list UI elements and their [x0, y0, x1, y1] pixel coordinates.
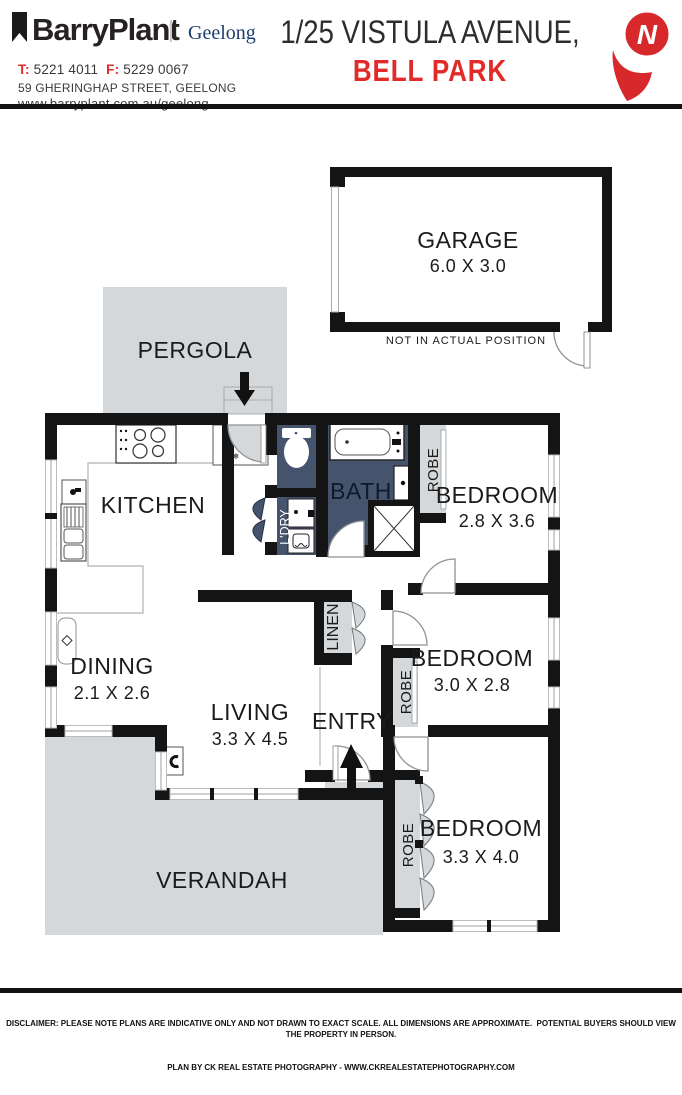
- linen-bifold-door: [352, 602, 365, 654]
- bath-label: BATH: [330, 478, 392, 504]
- bedroom2-label: BEDROOM: [411, 645, 533, 671]
- kitchen-label: KITCHEN: [101, 492, 205, 518]
- office-address: 59 GHERINGHAP STREET, GEELONG: [18, 81, 236, 95]
- robe3-label: ROBE: [400, 823, 417, 868]
- living-dims: 3.3 X 4.5: [212, 729, 289, 749]
- garage-roller-door: [332, 187, 339, 312]
- garage-note: NOT IN ACTUAL POSITION: [386, 335, 546, 347]
- bedroom1-door-arc: [421, 559, 455, 593]
- brand-divider: [170, 20, 172, 42]
- verandah-area: [45, 737, 383, 935]
- bedroom1-dims: 2.8 X 3.6: [459, 511, 536, 531]
- property-title: 1/25 VISTULA AVENUE, BELL PARK: [230, 14, 630, 89]
- garage: GARAGE 6.0 X 3.0 NOT IN ACTUAL POSITION: [330, 167, 612, 368]
- garage-label: GARAGE: [417, 227, 518, 253]
- garage-door-arc: [554, 332, 588, 366]
- north-icon: N: [606, 6, 678, 104]
- laundry-label: L'DRY: [278, 509, 292, 545]
- phone-t-label: T:: [18, 62, 30, 77]
- laundry-bifold-door: [253, 498, 265, 542]
- phone-line: T: 5221 4011 F: 5229 0067: [18, 62, 189, 77]
- disclaimer-text: DISCLAIMER: PLEASE NOTE PLANS ARE INDICA…: [0, 1018, 682, 1040]
- living-label: LIVING: [211, 699, 289, 725]
- bedroom3-door-arc: [394, 737, 428, 771]
- bedroom3-dims: 3.3 X 4.0: [443, 847, 520, 867]
- footer-divider-bar: [0, 988, 682, 993]
- verandah-label: VERANDAH: [156, 867, 288, 893]
- bedroom1-label: BEDROOM: [436, 482, 558, 508]
- bathtub-icon: [330, 424, 404, 460]
- credit-text: PLAN BY CK REAL ESTATE PHOTOGRAPHY - WWW…: [0, 1062, 682, 1073]
- robe2-label: ROBE: [398, 670, 415, 715]
- garage-door-leaf: [584, 332, 590, 368]
- garage-dims: 6.0 X 3.0: [430, 256, 507, 276]
- property-address-line1: 1/25 VISTULA AVENUE,: [258, 14, 602, 51]
- property-suburb: BELL PARK: [262, 53, 598, 89]
- cooktop-icon: [116, 425, 176, 463]
- pergola-door-leaf: [261, 425, 266, 463]
- bedroom2-dims: 3.0 X 2.8: [434, 675, 511, 695]
- fireplace-icon: [166, 747, 183, 775]
- phone-f-value: 5229 0067: [119, 62, 189, 77]
- bedroom3-label: BEDROOM: [420, 815, 542, 841]
- tap-icon: [62, 480, 86, 504]
- linen-label: LINEN: [325, 603, 342, 650]
- entry-door-leaf: [333, 746, 338, 780]
- dining-dims: 2.1 X 2.6: [74, 683, 151, 703]
- floor-plan: ❄ ❄ ❄: [0, 0, 682, 1024]
- bedroom2-door-arc: [393, 611, 427, 645]
- header-divider-bar: [0, 104, 682, 109]
- shower-icon: [368, 500, 420, 557]
- phone-f-label: F:: [106, 62, 119, 77]
- entry-label: ENTRY: [312, 708, 392, 734]
- brand-name: BarryPlant: [32, 12, 179, 48]
- dining-label: DINING: [70, 653, 154, 679]
- north-letter: N: [637, 19, 658, 50]
- double-sink-icon: [61, 504, 86, 561]
- pergola-label: PERGOLA: [138, 337, 253, 363]
- phone-t-value: 5221 4011: [30, 62, 106, 77]
